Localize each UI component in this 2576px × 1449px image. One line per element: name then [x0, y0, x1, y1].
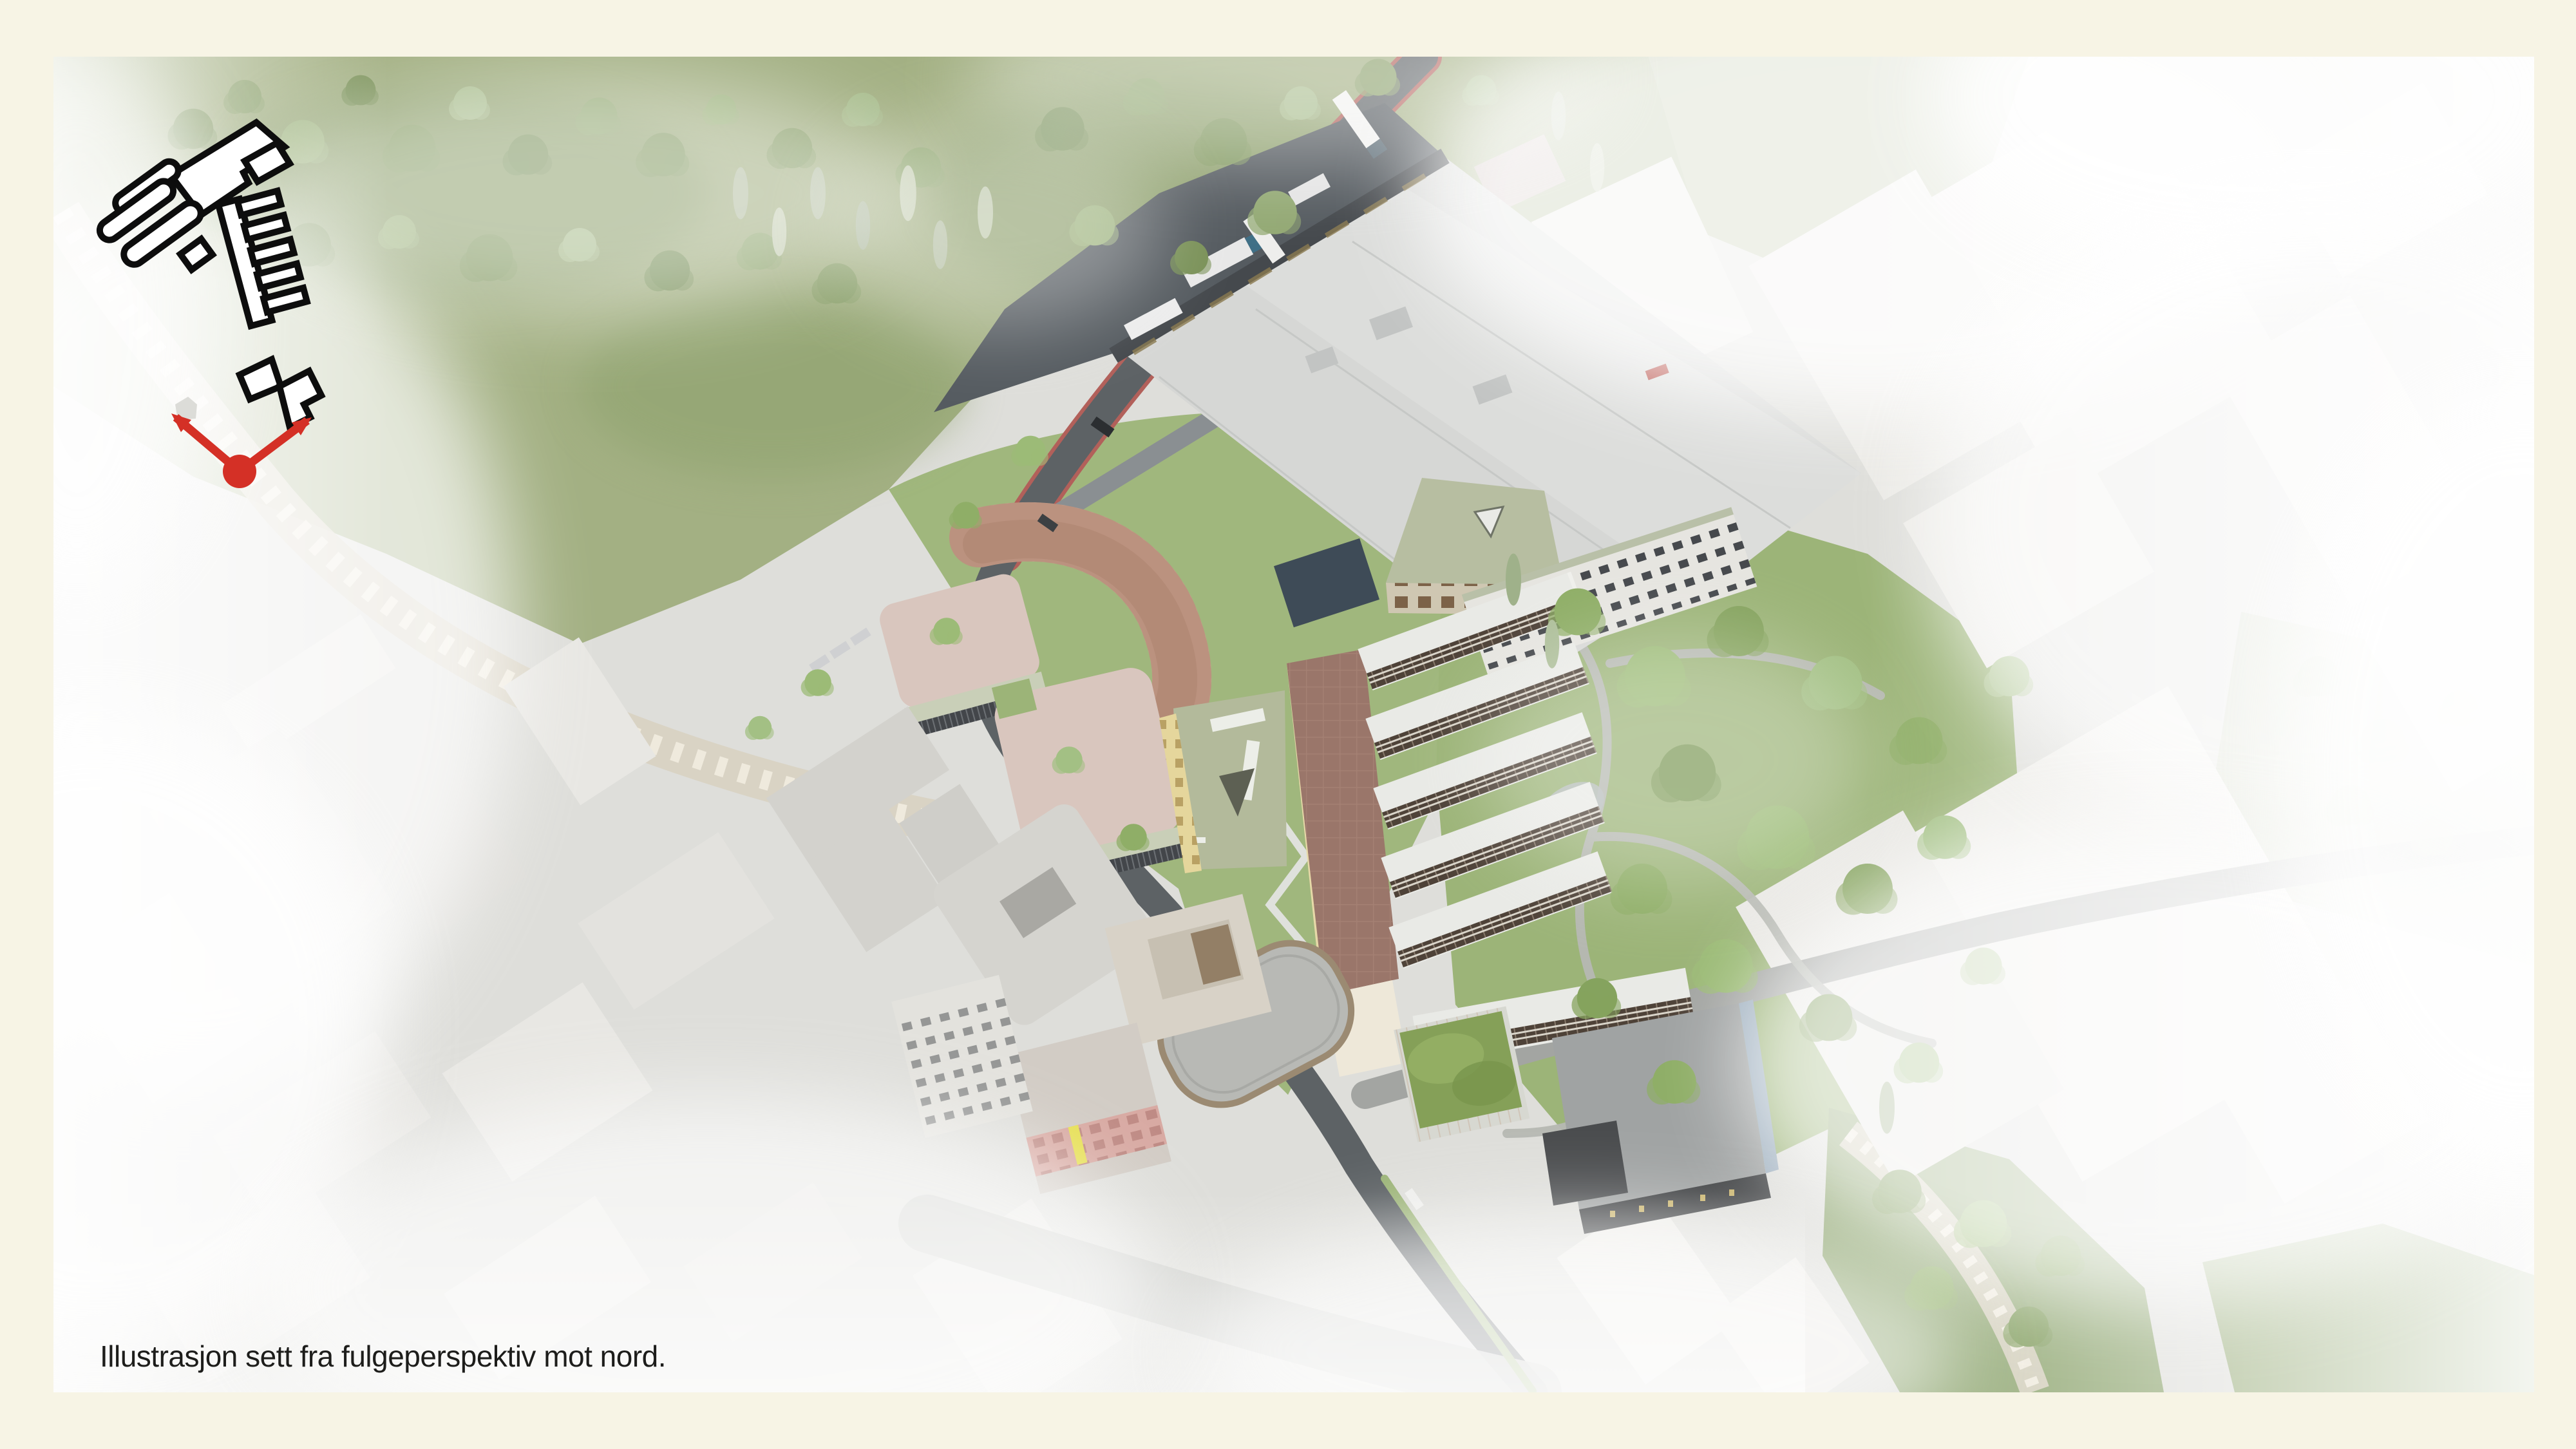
viewpoint-dot: [223, 455, 256, 488]
aerial-illustration: -: [0, 0, 2576, 1449]
architectural-aerial-illustration-page: -: [0, 0, 2576, 1449]
caption: Illustrasjon sett fra fulgeperspektiv mo…: [100, 1340, 666, 1373]
green-roof-cube: [1394, 1007, 1529, 1142]
